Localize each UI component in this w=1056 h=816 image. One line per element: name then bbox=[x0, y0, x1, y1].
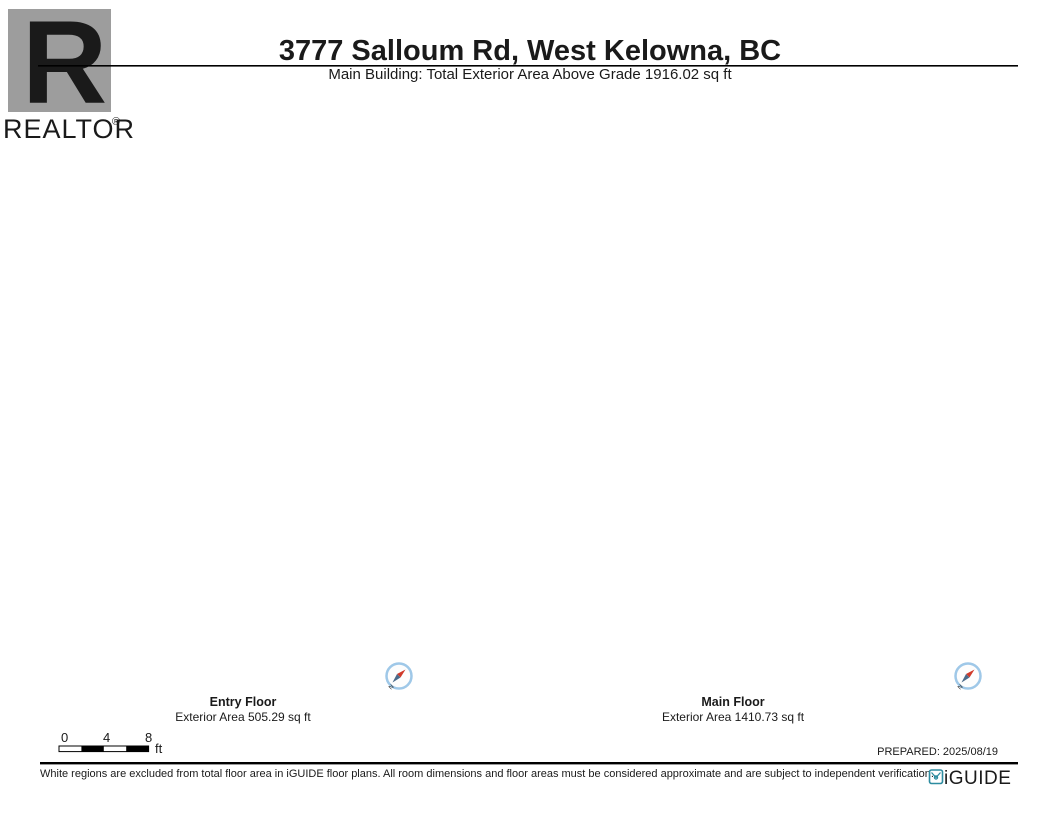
svg-text:8: 8 bbox=[145, 730, 152, 745]
svg-text:White regions are excluded fro: White regions are excluded from total fl… bbox=[40, 768, 934, 780]
svg-text:ft: ft bbox=[155, 741, 163, 756]
svg-text:R: R bbox=[22, 0, 107, 129]
svg-text:Exterior Area 505.29 sq ft: Exterior Area 505.29 sq ft bbox=[175, 710, 311, 724]
svg-text:3777 Salloum Rd, West Kelowna,: 3777 Salloum Rd, West Kelowna, BC bbox=[279, 35, 781, 67]
svg-text:4: 4 bbox=[103, 730, 110, 745]
svg-text:0: 0 bbox=[61, 730, 68, 745]
svg-text:PREPARED: 2025/08/19: PREPARED: 2025/08/19 bbox=[877, 746, 998, 758]
svg-text:Exterior Area 1410.73 sq ft: Exterior Area 1410.73 sq ft bbox=[662, 710, 805, 724]
svg-text:Entry Floor: Entry Floor bbox=[210, 695, 277, 709]
svg-text:®: ® bbox=[112, 116, 120, 128]
svg-text:Main Building: Total Exterior: Main Building: Total Exterior Area Above… bbox=[328, 66, 732, 83]
svg-text:iGUIDE: iGUIDE bbox=[944, 768, 1011, 789]
svg-text:Main Floor: Main Floor bbox=[701, 695, 764, 709]
